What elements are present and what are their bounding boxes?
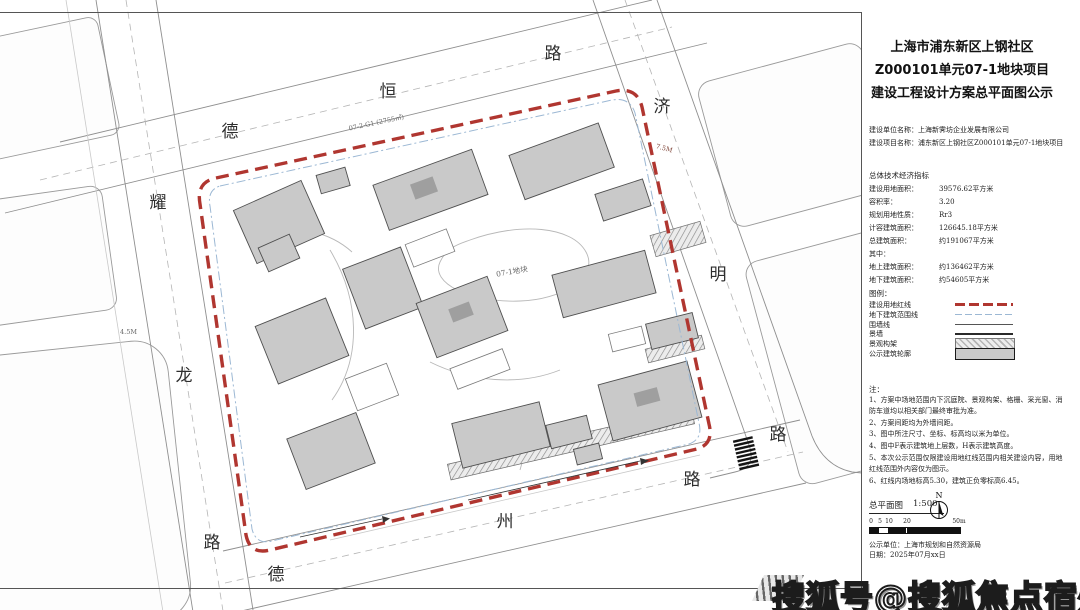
date-label: 日期： (869, 551, 890, 559)
indicator-value: 126645.18平方米 (939, 222, 998, 235)
indicator-row: 容积率：3.20 (869, 196, 1065, 209)
indicator-row: 其中： (869, 248, 1065, 261)
legend-label: 景观构架 (869, 339, 955, 349)
road-char: 龙 (176, 366, 193, 386)
indicator-value: 约191067平方米 (939, 235, 994, 248)
building (552, 250, 656, 317)
legend-label: 建设用地红线 (869, 300, 955, 310)
road-char: 德 (222, 122, 239, 142)
note-line: 5、本次公示范围仅限建设用地红线范围内相关建设内容，用地红线范围外内容仅为图示。 (869, 453, 1067, 475)
legend-swatch-wall (955, 333, 1013, 335)
owner-value: 上海新霁坊企业发展有限公司 (918, 124, 1009, 137)
title-line-1: 上海市浦东新区上钢社区 (866, 36, 1058, 59)
scale-segment (888, 528, 906, 533)
scale-segment (906, 528, 960, 533)
note-line: 2、方案间距均为外墙间距。 (869, 418, 1067, 429)
legend-label: 公示建筑轮廓 (869, 349, 955, 359)
legend-row: 地下建筑范围线 (869, 310, 1065, 320)
indicator-value: 约136462平方米 (939, 261, 994, 274)
building (316, 167, 350, 194)
indicator-row: 规划用地性质：Rr3 (869, 209, 1065, 222)
legend-header: 图例： (869, 288, 892, 299)
legend-swatch-redline (955, 303, 1013, 306)
publisher-label: 公示单位： (869, 541, 904, 549)
scale-ticks: 0 5 10 20 50m (869, 518, 989, 526)
road-char: 路 (684, 470, 701, 490)
indicator-value: Rr3 (939, 209, 952, 222)
indicator-label: 计容建筑面积： (869, 222, 939, 235)
road-char: 路 (545, 44, 562, 64)
indicator-value: 3.20 (939, 196, 955, 209)
date-value: 2025年07月xx日 (890, 551, 946, 559)
road-char: 路 (204, 533, 221, 553)
date-row: 日期：2025年07月xx日 (869, 550, 946, 560)
building (595, 179, 651, 221)
title-line-2: Z000101单元07-1地块项目 (866, 59, 1058, 82)
north-pointer (939, 502, 944, 517)
project-info-row: 建设项目名称： 浦东新区上钢社区Z000101单元07-1地块项目 (869, 137, 1069, 150)
scale-tick: 20 (903, 518, 911, 525)
indicator-label: 地上建筑面积： (869, 261, 939, 274)
scale-segment (879, 528, 888, 533)
indicator-value: 约54605平方米 (939, 274, 989, 287)
owner-label: 建设单位名称： (869, 124, 918, 137)
dim-label-right: 7.5M (655, 142, 674, 154)
legend-swatch-building (955, 348, 1015, 360)
scale-tick: 5 (878, 518, 882, 525)
road-char: 明 (710, 265, 727, 285)
plan-title: 总平面图 (869, 499, 903, 511)
info-panel: 上海市浦东新区上钢社区 Z000101单元07-1地块项目 建设工程设计方案总平… (862, 0, 1080, 610)
indicator-value: 39576.62平方米 (939, 183, 993, 196)
site-plan-map: 德 恒 路 耀 龙 路 济 明 路 德 州 路 07-2-G1 (2755㎡) … (0, 0, 862, 610)
legend-row: 建设用地红线 (869, 300, 1065, 310)
project-info: 建设单位名称： 上海新霁坊企业发展有限公司 建设项目名称： 浦东新区上钢社区Z0… (869, 124, 1069, 150)
site-code-label: 07-1地块 (495, 263, 529, 278)
indicators-table: 建设用地面积：39576.62平方米 容积率：3.20 规划用地性质：Rr3 计… (869, 183, 1065, 287)
notes-list: 1、方案中场地范围内下沉庭院、景观构架、格栅、采光窗、消防车道均以相关部门最终审… (869, 395, 1067, 487)
scale-bar-segments (869, 527, 961, 534)
project-name-label: 建设项目名称： (869, 137, 918, 150)
indicators-header: 总体技术经济指标 (869, 170, 929, 181)
note-line: 1、方案中场地范围内下沉庭院、景观构架、格栅、采光窗、消防车道均以相关部门最终审… (869, 395, 1067, 417)
legend-swatch-fence (955, 324, 1013, 325)
legend-label: 景墙 (869, 329, 955, 339)
indicator-label: 建设用地面积： (869, 183, 939, 196)
notes-header: 注： (869, 384, 884, 395)
scale-bar: 0 5 10 20 50m (869, 518, 989, 538)
road-char: 济 (654, 97, 671, 117)
legend: 建设用地红线 地下建筑范围线 围墙线 景墙 景观构架 公示建筑轮廓 (869, 300, 1065, 359)
title-line-3: 建设工程设计方案总平面图公示 (866, 82, 1058, 105)
road-char: 州 (497, 512, 514, 532)
note-line: 6、红线内场地标高5.30，建筑正负零标高6.45。 (869, 476, 1067, 487)
publisher-row: 公示单位：上海市规划和自然资源局 (869, 540, 981, 550)
dim-label-left: 4.5M (120, 328, 137, 336)
legend-row: 公示建筑轮廓 (869, 349, 1065, 359)
page-title: 上海市浦东新区上钢社区 Z000101单元07-1地块项目 建设工程设计方案总平… (866, 36, 1058, 105)
scale-tick: 10 (885, 518, 893, 525)
indicator-row: 建设用地面积：39576.62平方米 (869, 183, 1065, 196)
scale-tick: 50m (952, 518, 965, 525)
project-info-row: 建设单位名称： 上海新霁坊企业发展有限公司 (869, 124, 1069, 137)
indicator-row: 计容建筑面积：126645.18平方米 (869, 222, 1065, 235)
building (509, 123, 614, 200)
indicator-label: 容积率： (869, 196, 939, 209)
indicator-row: 地上建筑面积：约136462平方米 (869, 261, 1065, 274)
road-char: 恒 (380, 82, 397, 102)
note-line: 3、图中所注尺寸、坐标、标高均以米为单位。 (869, 429, 1067, 440)
parcel-code-label: 07-2-G1 (2755㎡) (348, 112, 405, 133)
north-label: N (936, 491, 943, 500)
legend-row: 围墙线 (869, 320, 1065, 330)
building (255, 298, 349, 384)
publisher-value: 上海市规划和自然资源局 (904, 541, 981, 549)
indicator-row: 总建筑面积：约191067平方米 (869, 235, 1065, 248)
indicator-row: 地下建筑面积：约54605平方米 (869, 274, 1065, 287)
project-name-value: 浦东新区上钢社区Z000101单元07-1地块项目 (918, 137, 1063, 150)
indicator-label: 总建筑面积： (869, 235, 939, 248)
legend-label: 围墙线 (869, 320, 955, 330)
plan-sheet: { "panel": { "title_lines": [ "上海市浦东新区上钢… (0, 0, 1080, 610)
legend-swatch-underground (955, 314, 1013, 316)
road-char: 耀 (150, 193, 167, 213)
building (287, 413, 375, 490)
legend-label: 地下建筑范围线 (869, 310, 955, 320)
indicator-label: 规划用地性质： (869, 209, 939, 222)
scale-segment (870, 528, 879, 533)
scale-tick: 0 (869, 518, 873, 525)
indicator-label: 地下建筑面积： (869, 274, 939, 287)
indicator-label: 其中： (869, 248, 939, 261)
note-line: 4、图中F表示建筑地上层数，H表示建筑高度。 (869, 441, 1067, 452)
road-char: 德 (268, 565, 285, 585)
watermark-text: 搜狐号@搜狐焦点宿州站 (772, 571, 1080, 610)
road-char: 路 (770, 425, 787, 445)
